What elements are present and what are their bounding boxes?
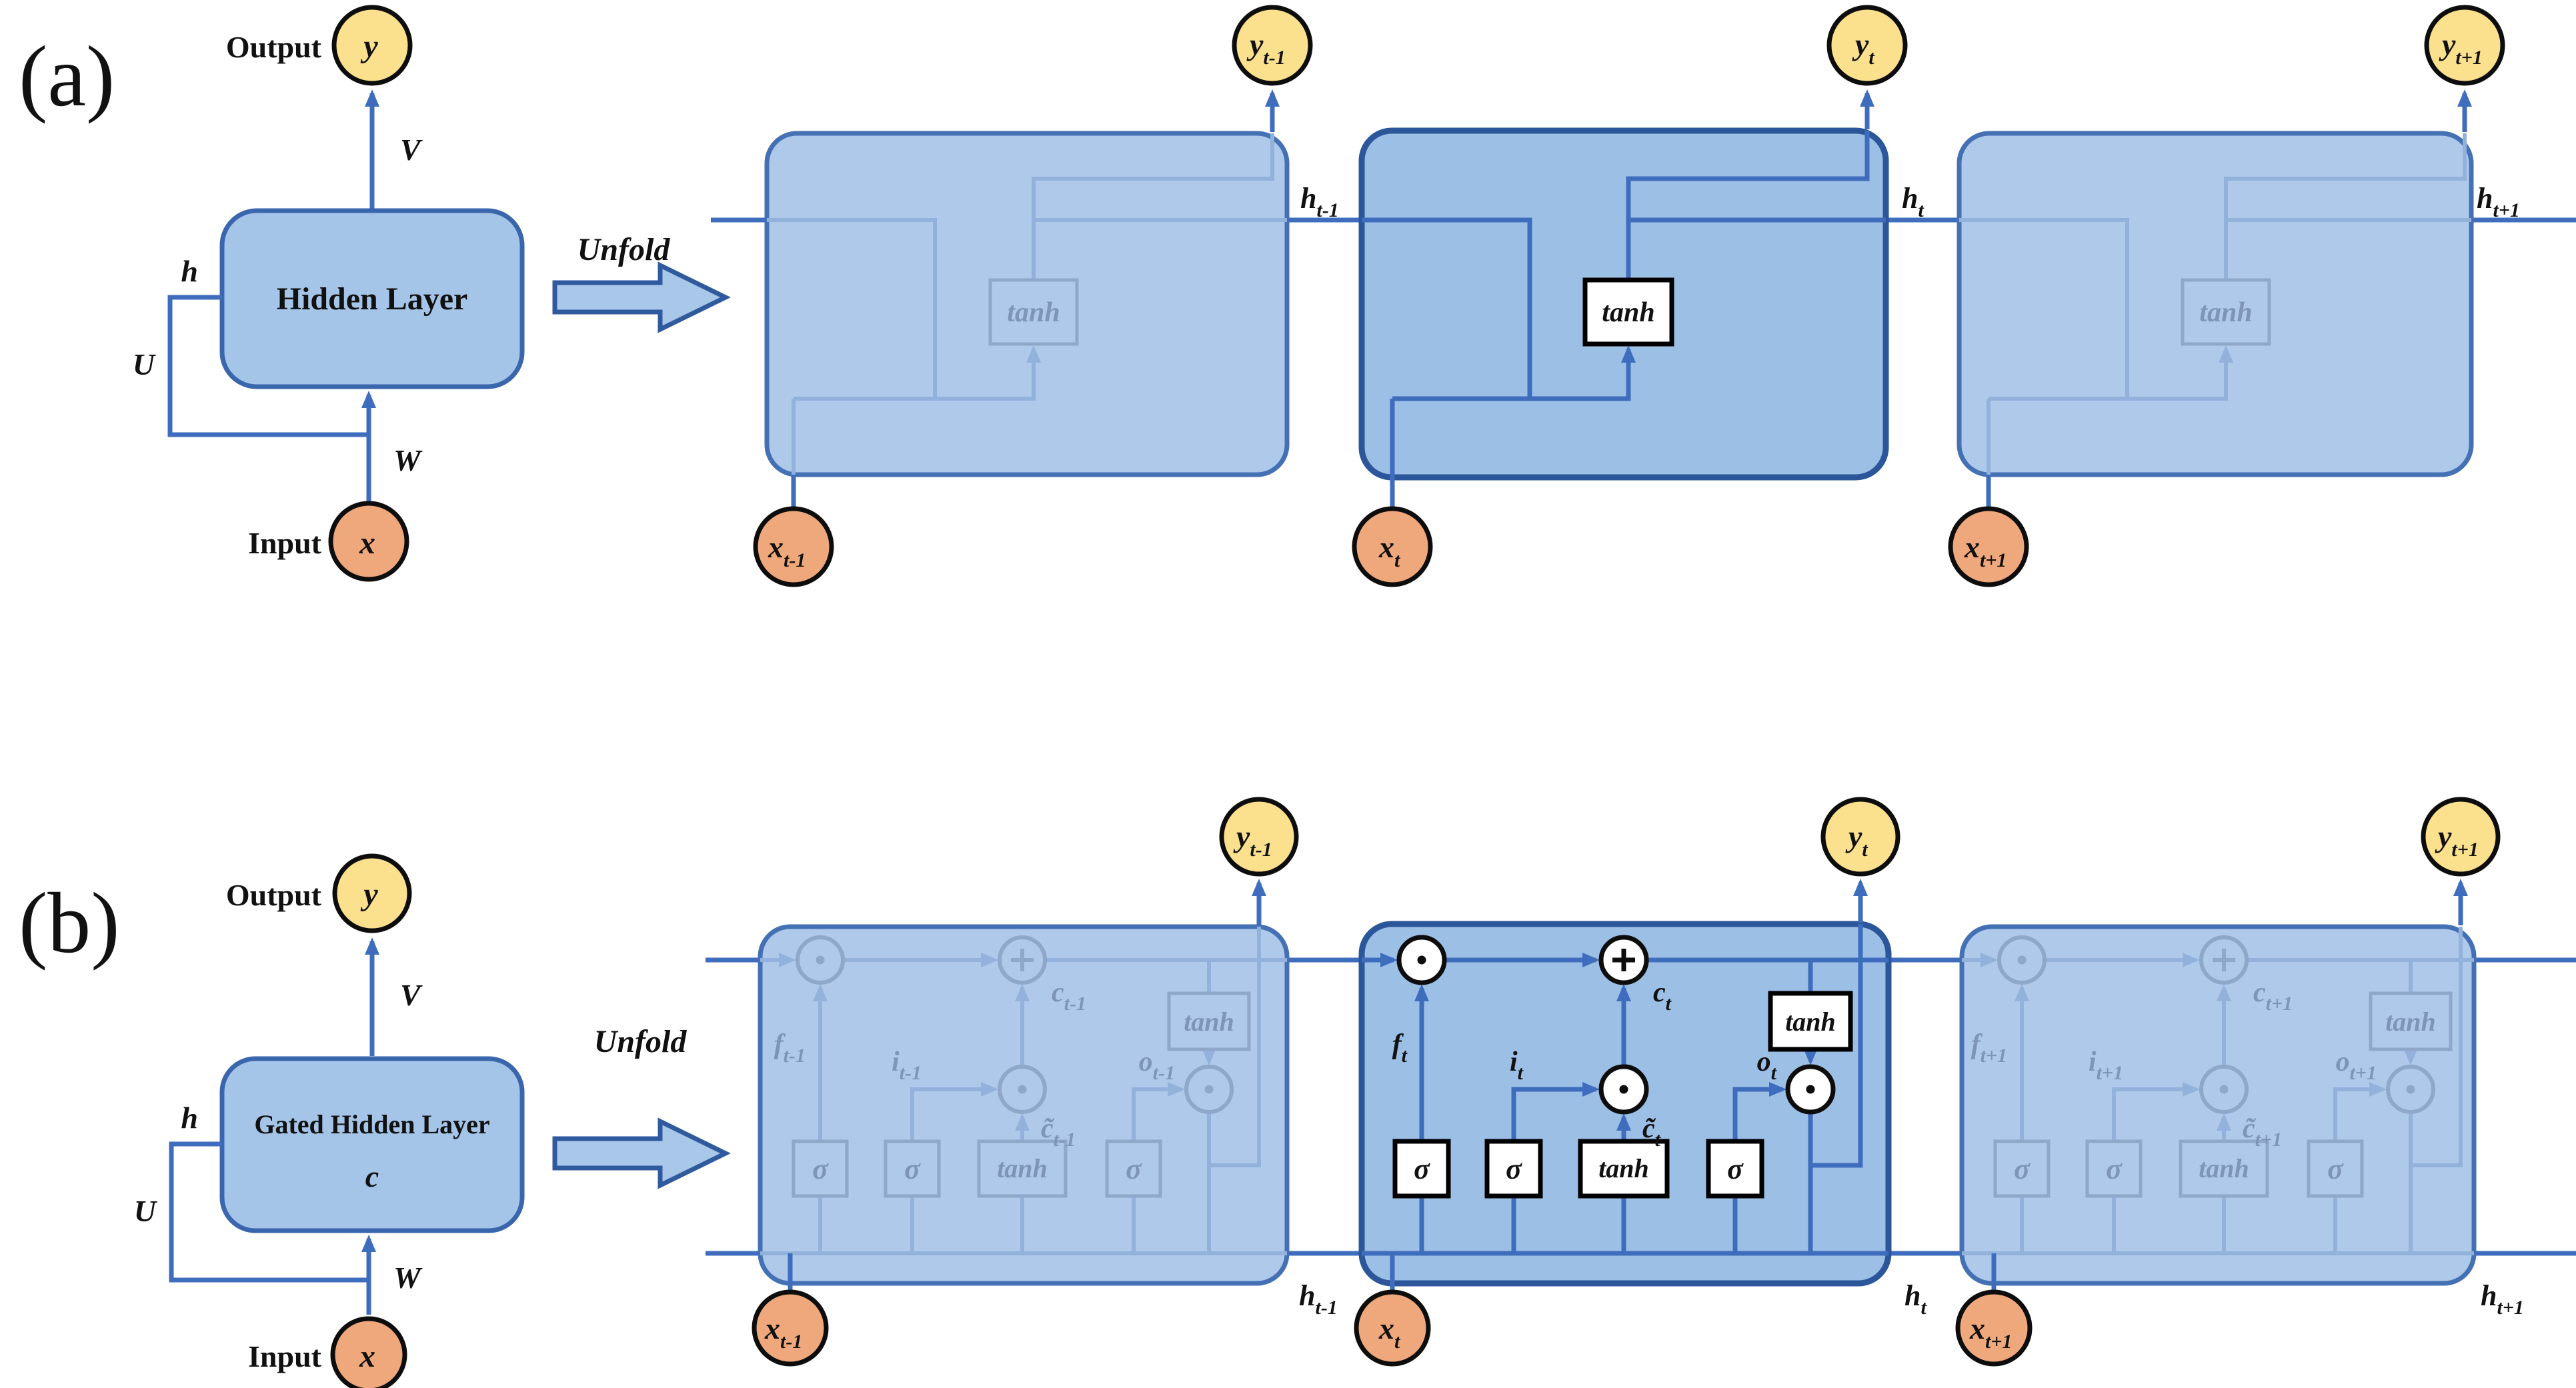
w-label: W [393, 1261, 423, 1295]
input-node-label: x [359, 1339, 375, 1374]
tanh-label: tanh [997, 1153, 1048, 1183]
output-node-label: y [360, 877, 378, 912]
panel-b-unfold: Unfold [555, 1024, 726, 1185]
w-label: W [393, 443, 423, 477]
tanh-label: tanh [2199, 1153, 2249, 1183]
gated-hidden-layer-label: Gated Hidden Layer [254, 1109, 489, 1139]
h-state-label: ht [1902, 182, 1924, 221]
panel-b-tag: (b) [19, 875, 120, 971]
dot-icon [1806, 1085, 1814, 1093]
h-state-label: ht [1904, 1279, 1927, 1319]
input-node [1958, 1292, 2030, 1364]
tanh-label: tanh [2385, 1007, 2436, 1037]
input-node [1951, 509, 2027, 585]
sigma-label: σ [1506, 1153, 1522, 1185]
output-node [2427, 7, 2503, 83]
panel-a-tag: (a) [19, 29, 115, 125]
unfold-label: Unfold [577, 232, 671, 267]
tanh-gate-label: tanh [2199, 297, 2252, 328]
sigma-label: σ [2106, 1153, 2123, 1185]
h-label: h [181, 1101, 198, 1135]
v-label: V [400, 978, 423, 1012]
panel-b: (b) Output y V Gated Hidden Layer c h U … [19, 799, 2576, 1388]
panel-b-folded: Output y V Gated Hidden Layer c h U W In… [134, 856, 522, 1388]
panel-a-folded: Output y V Hidden Layer h U W Input x [133, 7, 522, 579]
h-label: h [181, 254, 198, 288]
panel-a-unfold: Unfold [555, 232, 726, 329]
output-label: Output [226, 878, 322, 912]
sigma-label: σ [812, 1153, 829, 1185]
dot-icon [2407, 1085, 2415, 1093]
tanh-label: tanh [1785, 1007, 1836, 1037]
output-label: Output [226, 30, 322, 64]
rnn-cell-t-minus-1: tanh [767, 133, 1287, 475]
cell-state-label: c [365, 1159, 379, 1193]
figure-container: (a) Output y V Hidden Layer h U W Input … [0, 0, 2576, 1388]
sigma-label: σ [904, 1153, 921, 1185]
dot-icon [1620, 1085, 1628, 1093]
unfold-arrow-icon [555, 1121, 726, 1185]
output-node [2423, 799, 2498, 874]
input-node-label: x [359, 525, 375, 561]
h-state-label: ht-1 [1300, 182, 1339, 221]
lstm-cell-t: σ σ tanh σ tanh ft it ot ct c̃t [1362, 924, 1888, 1283]
hidden-layer-label: Hidden Layer [277, 281, 468, 317]
lstm-cell-t-plus-1: σ σ tanh σ tanh ft+1 it+1 ot+1 ct+1 c̃t+… [1962, 927, 2474, 1283]
output-node-label: y [360, 29, 378, 64]
h-state-label: ht+1 [2477, 182, 2520, 221]
v-label: V [400, 133, 423, 167]
tanh-label: tanh [1598, 1153, 1649, 1183]
dot-icon [2018, 956, 2026, 964]
lstm-cell-t-minus-1: σ σ tanh σ tanh ft-1 it-1 ot-1 ct-1 c̃t-… [760, 927, 1287, 1283]
unfold-label: Unfold [594, 1024, 688, 1059]
sigma-label: σ [1414, 1153, 1430, 1185]
sigma-label: σ [2327, 1153, 2344, 1185]
sigma-label: σ [1727, 1153, 1744, 1185]
tanh-gate-label: tanh [1007, 297, 1060, 328]
panel-a: (a) Output y V Hidden Layer h U W Input … [19, 7, 2576, 585]
input-node [756, 509, 832, 585]
rnn-cell-t-plus-1: tanh [1959, 133, 2471, 475]
dot-icon [1205, 1085, 1213, 1093]
dot-icon [1418, 956, 1426, 964]
panel-a-row: tanh tanh tanh [711, 7, 2576, 585]
u-label: U [133, 347, 157, 381]
dot-icon [816, 956, 824, 964]
panel-b-row: σ σ tanh σ tanh ft-1 it-1 ot-1 ct-1 c̃t-… [706, 799, 2576, 1364]
dot-icon [2220, 1085, 2228, 1093]
input-label: Input [248, 526, 322, 560]
input-label: Input [248, 1339, 322, 1373]
unfold-arrow-icon [555, 265, 726, 329]
tanh-gate-label: tanh [1602, 297, 1654, 328]
sigma-label: σ [2014, 1153, 2031, 1185]
h-state-label: ht-1 [1299, 1279, 1338, 1319]
output-node [1222, 799, 1296, 874]
rnn-cell-t: tanh [1362, 131, 1886, 477]
gated-hidden-layer-box [222, 1059, 522, 1231]
h-state-label: ht+1 [2481, 1279, 2524, 1319]
rnn-lstm-diagram: (a) Output y V Hidden Layer h U W Input … [0, 0, 2576, 1388]
u-label: U [134, 1194, 158, 1228]
output-node [1234, 7, 1310, 83]
sigma-label: σ [1126, 1153, 1142, 1185]
dot-icon [1018, 1085, 1026, 1093]
tanh-label: tanh [1184, 1007, 1234, 1037]
